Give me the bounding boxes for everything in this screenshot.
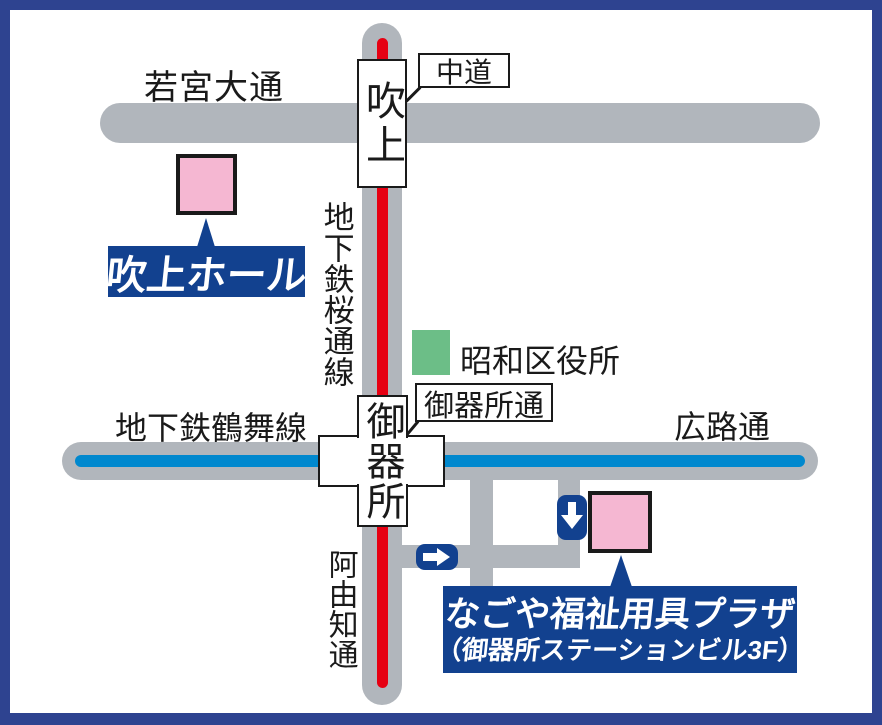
down-arrow-shaft <box>568 502 576 515</box>
right-arrow-head <box>437 548 450 566</box>
gokiso-dori-label-box: 御器所通 <box>415 383 553 422</box>
showa-ward-office-building <box>412 330 450 375</box>
fukiage-hall-label: 吹上ホール <box>103 243 309 301</box>
access-map: 吹上 御器所 若宮大通 地下鉄桜通線 地下鉄鶴舞線 広路通 阿由知通 昭和区役所… <box>0 0 882 725</box>
gokiso-dori-label: 御器所通 <box>424 381 544 425</box>
sakura-dori-line-label: 地下鉄桜通線 <box>320 201 352 387</box>
plaza-floor-label: （御器所ステーションビル3F） <box>435 636 806 666</box>
road-wakamiya-odori <box>100 103 820 143</box>
plaza-building <box>588 491 652 553</box>
hiroji-dori-label: 広路通 <box>674 402 770 448</box>
gokiso-station-label-wrap: 御器所 <box>357 395 408 527</box>
wakamiya-odori-label: 若宮大通 <box>144 60 284 109</box>
fukiage-station-box: 吹上 <box>357 59 407 188</box>
down-arrow-head <box>561 515 583 529</box>
showa-ward-office-label: 昭和区役所 <box>460 336 620 382</box>
nakamichi-label: 中道 <box>436 51 492 91</box>
fukiage-hall-callout: 吹上ホール <box>108 246 305 297</box>
plaza-callout-pointer <box>610 555 632 587</box>
down-arrow-icon <box>557 495 587 540</box>
right-arrow-icon <box>416 544 458 570</box>
ayuchi-dori-label: 阿由知通 <box>324 549 355 669</box>
fukiage-station-label: 吹上 <box>362 80 402 168</box>
nakamichi-pointer <box>405 86 421 102</box>
gokiso-station-label: 御器所 <box>363 401 402 521</box>
plaza-callout: なごや福祉用具プラザ （御器所ステーションビル3F） <box>443 586 797 673</box>
fukiage-hall-building <box>176 154 237 215</box>
right-arrow-shaft <box>423 553 437 561</box>
nakamichi-label-box: 中道 <box>418 53 510 88</box>
tsurumai-line-label: 地下鉄鶴舞線 <box>115 403 307 449</box>
plaza-name-label: なごや福祉用具プラザ <box>443 594 797 636</box>
side-street-vertical-1 <box>470 478 493 588</box>
